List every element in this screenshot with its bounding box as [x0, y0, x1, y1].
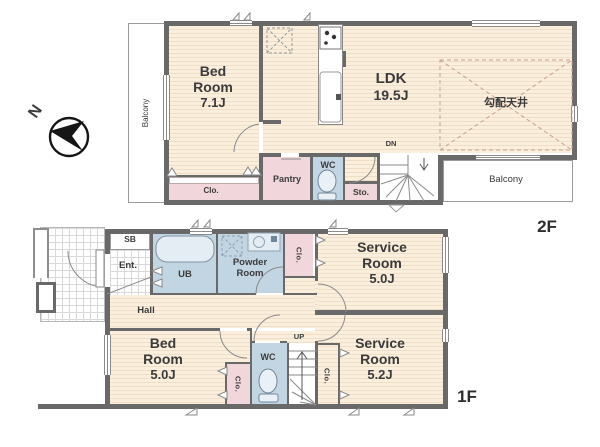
entrance-door-gap	[105, 254, 110, 287]
sliding-door-gap	[281, 153, 299, 157]
hall-before-storage-2f	[345, 157, 377, 183]
wall-segment	[259, 153, 263, 201]
closet-service-a-label: Clo.	[294, 240, 302, 270]
wall-segment	[169, 175, 259, 177]
wall-segment	[283, 229, 285, 294]
wall-segment	[438, 155, 443, 205]
wall-segment	[225, 362, 250, 364]
room-size: 5.0J	[369, 271, 394, 286]
wall-segment	[315, 310, 448, 315]
floor1-label: 1F	[452, 387, 482, 406]
wall-segment	[105, 229, 448, 234]
stairs-1f-direction-label: UP	[290, 333, 308, 341]
wall-segment	[38, 404, 448, 409]
balcony-sliding-door	[476, 155, 540, 160]
wall-segment	[225, 364, 227, 404]
wall-segment	[216, 234, 218, 293]
wc-2f-label: WC	[314, 160, 342, 170]
room-unit-bath	[153, 234, 216, 293]
wall-segment	[315, 229, 318, 281]
wall-segment	[287, 343, 289, 404]
door-gap-floor	[315, 281, 318, 310]
wc-1f-label: WC	[254, 352, 282, 362]
window	[571, 106, 578, 122]
unit-bath-label: UB	[170, 270, 200, 281]
stairwell-1f	[289, 343, 317, 404]
room-size: 7.1J	[200, 95, 225, 110]
bedroom-2f-label: Bed Room7.1J	[187, 64, 239, 111]
wall-segment	[105, 375, 110, 405]
room-name: Service Room	[348, 336, 412, 367]
kitchen-counter	[318, 24, 343, 125]
bedroom-2f-closet-shelf	[169, 177, 259, 184]
wall-segment	[315, 341, 318, 404]
wall-segment	[377, 153, 380, 205]
window	[163, 75, 170, 140]
room-name: Bed Room	[187, 64, 239, 95]
service-room-b-label: Service Room5.2J	[348, 336, 412, 383]
floor2-label: 2F	[532, 217, 562, 236]
balcony-2f-west-label: Balcony	[142, 85, 152, 141]
room-size: 19.5J	[373, 87, 408, 103]
window	[328, 228, 348, 235]
stairs-2f-direction-label: DN	[382, 140, 400, 148]
room-size: 5.2J	[367, 367, 392, 382]
window	[442, 329, 449, 342]
window	[190, 228, 212, 235]
wall-segment	[153, 293, 317, 295]
door-gap	[259, 122, 263, 153]
room-entrance	[110, 250, 152, 295]
wall-segment	[317, 343, 340, 345]
closet-bedroom-1f-label: Clo.	[233, 369, 241, 399]
window	[472, 20, 540, 27]
entrance-label: Ent.	[113, 261, 143, 272]
bedroom-2f-closet-label: Clo.	[193, 187, 229, 196]
stairwell-2f	[380, 155, 438, 200]
room-size: 5.0J	[150, 367, 175, 382]
closet-service-b-label: Clo.	[322, 361, 330, 391]
wall-segment	[110, 328, 220, 331]
porch-side-fence	[33, 228, 49, 278]
door-gap-floor	[315, 315, 318, 341]
wall-segment	[259, 26, 263, 122]
ldk-label: LDK19.5J	[356, 71, 426, 105]
wall-segment	[338, 345, 340, 404]
wall-segment	[105, 229, 110, 254]
window	[230, 20, 252, 26]
pantry-label: Pantry	[266, 174, 308, 184]
hall-label: Hall	[131, 306, 161, 317]
service-room-a-label: Service Room5.0J	[350, 240, 414, 287]
balcony-2f-south-label: Balcony	[476, 175, 536, 186]
compass-north-label: N	[23, 99, 49, 126]
floorplan: N Balcony Bed Room7.1J Clo. LDK19.5J 勾配天…	[0, 0, 600, 447]
storage-2f-label: Sto.	[346, 188, 376, 198]
window	[442, 237, 449, 273]
room-name: Bed Room	[137, 336, 189, 367]
wall-segment	[343, 153, 345, 201]
wall-segment	[164, 200, 441, 205]
wall-segment	[250, 328, 252, 404]
powder-room-label: Powder Room	[224, 258, 276, 279]
wall-segment	[345, 181, 377, 184]
wall-segment	[263, 120, 281, 124]
compass-icon	[50, 118, 88, 156]
room-name: LDK	[356, 71, 426, 88]
door-gap	[255, 341, 280, 343]
wall-segment	[310, 153, 313, 201]
wall-segment	[572, 21, 577, 160]
sloped-ceiling-label: 勾配天井	[474, 97, 538, 109]
window	[104, 335, 111, 375]
outdoor-storage	[36, 282, 56, 313]
door-gap	[256, 293, 283, 295]
bedroom-1f-label: Bed Room5.0J	[137, 336, 189, 383]
shoe-box-label: SB	[115, 235, 145, 245]
wall-segment	[285, 276, 315, 278]
room-name: Service Room	[350, 240, 414, 271]
wall-segment	[150, 229, 153, 295]
